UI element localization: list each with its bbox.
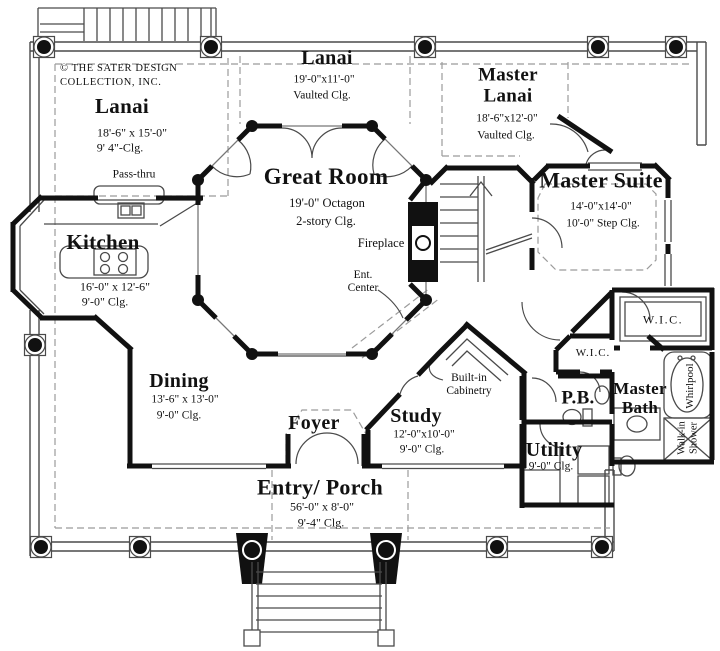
room-dims-master-suite: 14'-0"x14'-0" [570,201,631,214]
room-label-master-bath: Master Bath [609,379,671,417]
rear-stair [38,8,216,41]
feature-label-built-in-cabinetry: Built-in Cabinetry [436,372,502,398]
room-clg-master-suite: 10'-0" Step Clg. [566,218,640,231]
front-steps [244,562,394,646]
room-dims-dining: 13'-6" x 13'-0" [151,394,218,407]
room-clg-lanai-top: Vaulted Clg. [293,90,351,103]
room-label-utility: Utility [526,439,583,461]
feature-label-whirlpool: Whirlpool [684,363,696,408]
room-dims-lanai-left: 18'-6" x 15'-0" [97,126,167,139]
room-dims-lanai-top: 19'-0"x11'-0" [293,74,354,87]
room-dims-study: 12'-0"x10'-0" [393,429,454,442]
room-dims-entry-porch: 56'-0" x 8'-0" [290,500,354,513]
room-label-kitchen: Kitchen [66,231,139,255]
room-label-study: Study [390,405,442,427]
room-clg-master-lanai: Vaulted Clg. [477,130,535,143]
room-dims-master-lanai: 18'-6"x12'-0" [476,113,537,126]
room-dims-great-room: 19'-0" Octagon [289,196,365,210]
room-clg-lanai-left: 9' 4"-Clg. [97,141,143,154]
room-dims-kitchen: 16'-0" x 12'-6" [80,280,150,293]
room-label-foyer: Foyer [288,412,339,434]
room-clg-great-room: 2-story Clg. [296,214,356,228]
room-label-master-lanai: Master Lanai [466,65,550,108]
room-clg-study: 9'-0" Clg. [400,444,444,457]
floor-plan: © THE SATER DESIGN COLLECTION, INC. Lana… [0,0,720,651]
room-label-wic-hall: W.I.C. [576,347,611,359]
feature-label-fireplace: Fireplace [358,236,405,250]
copyright-text: © THE SATER DESIGN COLLECTION, INC. [60,62,178,90]
room-clg-entry-porch: 9'-4" Clg. [298,516,344,529]
room-label-lanai-left: Lanai [95,95,149,119]
room-label-powder-bath: P.B. [561,387,594,408]
feature-label-pass-thru: Pass-thru [113,169,156,182]
room-clg-utility: 9'-0" Clg. [529,461,573,474]
fireplace-fixture [408,202,438,282]
room-label-entry-porch: Entry/ Porch [257,476,383,501]
entry-columns [236,533,402,584]
feature-label-ent-center: Ent. Center [338,269,388,295]
feature-label-walk-in-shower: Walk-in Shower [676,412,700,464]
room-clg-kitchen: 9'-0" Clg. [82,295,128,308]
room-clg-dining: 9'-0" Clg. [157,410,201,423]
room-label-lanai-top: Lanai [301,47,353,69]
room-label-master-suite: Master Suite [539,169,663,194]
room-label-great-room: Great Room [264,164,389,190]
room-label-wic-master: W.I.C. [643,313,683,326]
room-label-dining: Dining [149,370,209,392]
